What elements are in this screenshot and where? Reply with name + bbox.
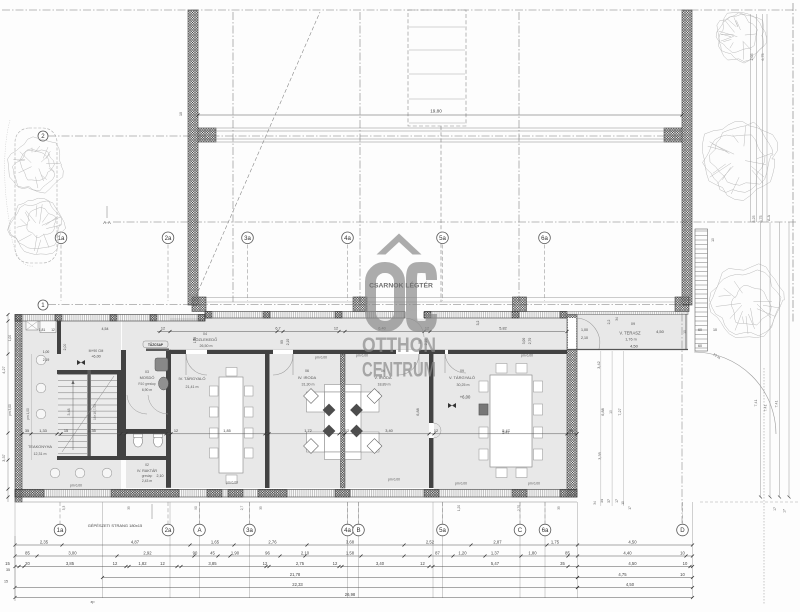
- svg-text:12: 12: [263, 561, 268, 566]
- svg-text:12: 12: [160, 561, 165, 566]
- svg-text:17: 17: [615, 499, 619, 503]
- svg-text:MOSDÓ: MOSDÓ: [140, 375, 155, 380]
- svg-text:87: 87: [435, 550, 440, 555]
- svg-text:1,38: 1,38: [193, 337, 197, 344]
- svg-text:3,00: 3,00: [68, 550, 77, 555]
- svg-text:pm 0,00: pm 0,00: [528, 482, 540, 486]
- svg-text:1a: 1a: [57, 527, 64, 534]
- svg-text:pm 0,00: pm 0,00: [388, 478, 400, 482]
- svg-text:12: 12: [113, 561, 118, 566]
- svg-text:21,41 m: 21,41 m: [186, 385, 199, 389]
- svg-text:17: 17: [773, 507, 777, 511]
- svg-text:26,98: 26,98: [345, 592, 356, 597]
- svg-text:10: 10: [621, 501, 625, 505]
- svg-text:37: 37: [607, 499, 611, 503]
- svg-text:10: 10: [713, 328, 717, 332]
- svg-text:3,2: 3,2: [476, 321, 480, 326]
- svg-text:1,82: 1,82: [142, 428, 150, 433]
- svg-text:1,58: 1,58: [346, 550, 355, 555]
- svg-text:pm 0,00: pm 0,00: [455, 482, 467, 486]
- svg-text:TEAKONYHA: TEAKONYHA: [28, 444, 52, 449]
- svg-text:19,80: 19,80: [430, 109, 442, 114]
- svg-text:5a: 5a: [439, 235, 446, 242]
- svg-text:2,10: 2,10: [581, 336, 588, 340]
- svg-text:8,75: 8,75: [759, 216, 763, 223]
- svg-text:35: 35: [557, 506, 561, 510]
- svg-text:3a: 3a: [246, 527, 253, 534]
- svg-text:1,76 m: 1,76 m: [625, 338, 637, 342]
- svg-text:1,20: 1,20: [458, 550, 467, 555]
- svg-text:3,00: 3,00: [522, 338, 526, 345]
- svg-text:90: 90: [193, 550, 198, 555]
- svg-text:2,43 m: 2,43 m: [142, 479, 153, 483]
- svg-text:22,33: 22,33: [292, 582, 303, 587]
- svg-text:pm 1,00: pm 1,00: [26, 408, 30, 420]
- svg-text:35: 35: [25, 428, 29, 433]
- svg-text:2,87: 2,87: [493, 539, 502, 544]
- svg-text:31,30 m: 31,30 m: [302, 383, 315, 387]
- svg-text:5,3: 5,3: [62, 506, 66, 511]
- svg-text:90: 90: [280, 340, 284, 344]
- svg-text:4,40: 4,40: [623, 550, 632, 555]
- svg-text:M+90 CM: M+90 CM: [89, 349, 104, 353]
- svg-text:6,88: 6,88: [416, 408, 420, 415]
- svg-text:4,50: 4,50: [628, 539, 637, 544]
- svg-text:R10 greslap: R10 greslap: [138, 382, 155, 386]
- svg-text:3,40: 3,40: [385, 428, 393, 433]
- svg-text:02: 02: [145, 463, 149, 467]
- svg-text:GÉPÉSZETI STRANG 180x15: GÉPÉSZETI STRANG 180x15: [88, 523, 143, 528]
- svg-text:17: 17: [783, 509, 787, 513]
- svg-text:5,47: 5,47: [491, 561, 500, 566]
- svg-text:5,82: 5,82: [499, 327, 506, 331]
- svg-text:2,92: 2,92: [143, 550, 152, 555]
- svg-text:+6,00: +6,00: [460, 395, 471, 400]
- svg-text:1,75: 1,75: [551, 539, 560, 544]
- svg-text:17: 17: [628, 506, 632, 510]
- svg-text:09: 09: [631, 322, 635, 326]
- svg-text:pm 0,00: pm 0,00: [70, 484, 82, 488]
- svg-text:1,80: 1,80: [528, 550, 537, 555]
- svg-text:4,87: 4,87: [131, 539, 140, 544]
- svg-text:21,78: 21,78: [290, 572, 301, 577]
- svg-text:3,42: 3,42: [597, 361, 601, 368]
- svg-text:7,27: 7,27: [618, 408, 622, 415]
- svg-text:CSARNOK LÉGTÉR: CSARNOK LÉGTÉR: [369, 281, 433, 290]
- svg-text:1,00: 1,00: [43, 350, 50, 354]
- svg-text:1,65: 1,65: [211, 539, 220, 544]
- svg-text:OTTHON: OTTHON: [362, 334, 436, 357]
- svg-text:35: 35: [127, 506, 131, 510]
- svg-text:06: 06: [305, 369, 309, 373]
- svg-text:2,10: 2,10: [301, 550, 310, 555]
- svg-text:2a: 2a: [165, 527, 172, 534]
- svg-text:A-A: A-A: [767, 214, 771, 221]
- svg-text:2a: 2a: [165, 235, 172, 242]
- svg-text:35: 35: [560, 561, 565, 566]
- svg-text:6a: 6a: [542, 527, 549, 534]
- svg-text:2,70: 2,70: [528, 338, 532, 345]
- svg-text:1,81: 1,81: [39, 328, 46, 332]
- svg-text:3,40: 3,40: [376, 561, 385, 566]
- svg-text:04: 04: [203, 332, 207, 336]
- svg-text:35: 35: [259, 506, 263, 510]
- svg-text:3,48: 3,48: [67, 409, 71, 416]
- svg-text:7,41: 7,41: [775, 401, 779, 408]
- svg-text:IV. TÁRGYALÓ: IV. TÁRGYALÓ: [178, 376, 205, 381]
- svg-text:35: 35: [569, 428, 573, 433]
- svg-text:2,00: 2,00: [63, 344, 67, 351]
- svg-text:10: 10: [179, 112, 183, 116]
- svg-text:4,75: 4,75: [618, 572, 627, 577]
- svg-text:6,88: 6,88: [601, 408, 605, 415]
- svg-text:2,05: 2,05: [750, 54, 754, 61]
- svg-text:IV. RAKTÁR: IV. RAKTÁR: [137, 469, 157, 473]
- svg-text:15: 15: [121, 428, 125, 433]
- svg-text:18×16,7/28: 18×16,7/28: [93, 404, 97, 420]
- svg-text:60: 60: [698, 328, 702, 332]
- svg-text:1,33: 1,33: [39, 428, 47, 433]
- svg-text:5,47: 5,47: [502, 428, 510, 433]
- svg-text:2,10: 2,10: [157, 474, 164, 478]
- svg-text:15: 15: [4, 580, 8, 584]
- svg-text:10: 10: [683, 330, 687, 334]
- svg-text:3,85: 3,85: [208, 561, 217, 566]
- svg-text:12: 12: [51, 328, 55, 332]
- svg-text:20: 20: [25, 561, 30, 566]
- svg-text:1,37: 1,37: [491, 550, 500, 555]
- svg-text:4a: 4a: [344, 235, 351, 242]
- svg-text:12: 12: [174, 428, 178, 433]
- svg-text:4a: 4a: [344, 527, 351, 534]
- svg-text:pm 3,00: pm 3,00: [8, 404, 12, 416]
- svg-text:1,20: 1,20: [457, 505, 461, 511]
- svg-text:1,85: 1,85: [223, 429, 230, 433]
- svg-text:26,50 m: 26,50 m: [200, 344, 213, 348]
- svg-text:12: 12: [334, 327, 338, 331]
- svg-text:6,7: 6,7: [275, 327, 280, 331]
- svg-text:10: 10: [680, 572, 685, 577]
- svg-text:12,31 m: 12,31 m: [34, 452, 47, 456]
- svg-text:8,25: 8,25: [752, 216, 756, 223]
- svg-text:18,89 m: 18,89 m: [378, 383, 391, 387]
- svg-text:B: B: [356, 527, 360, 534]
- svg-text:zp: zp: [90, 600, 94, 604]
- svg-text:2,76: 2,76: [268, 539, 277, 544]
- svg-text:+6,00: +6,00: [91, 355, 101, 359]
- svg-text:4,50: 4,50: [626, 582, 635, 587]
- svg-text:10: 10: [711, 238, 715, 242]
- svg-text:3,37: 3,37: [2, 454, 6, 461]
- svg-text:CENTRUM: CENTRUM: [362, 359, 436, 382]
- svg-text:IV. IRODA: IV. IRODA: [298, 375, 317, 380]
- svg-text:90: 90: [194, 506, 198, 510]
- svg-text:35: 35: [6, 568, 10, 572]
- svg-text:3,85: 3,85: [66, 561, 75, 566]
- svg-text:10: 10: [683, 561, 688, 566]
- svg-text:12: 12: [161, 327, 165, 331]
- svg-text:D: D: [680, 527, 685, 534]
- svg-text:2,7: 2,7: [240, 506, 244, 511]
- svg-text:6,90 m: 6,90 m: [142, 388, 153, 392]
- svg-text:3a: 3a: [244, 235, 251, 242]
- svg-text:pm 0,00: pm 0,00: [315, 356, 327, 360]
- svg-text:2,75: 2,75: [296, 561, 305, 566]
- svg-text:pm 0,00: pm 0,00: [521, 354, 533, 358]
- svg-text:2,70: 2,70: [517, 505, 521, 511]
- svg-text:45: 45: [210, 550, 215, 555]
- svg-text:V. TERASZ: V. TERASZ: [619, 331, 641, 336]
- svg-text:34: 34: [615, 317, 619, 321]
- svg-text:2,35: 2,35: [40, 539, 49, 544]
- svg-text:7,41: 7,41: [754, 400, 758, 407]
- svg-text:A-A: A-A: [103, 220, 111, 225]
- svg-text:5a: 5a: [439, 527, 446, 534]
- svg-text:10: 10: [609, 410, 613, 414]
- svg-text:85: 85: [565, 550, 570, 555]
- svg-text:4,50: 4,50: [656, 329, 665, 334]
- svg-text:6,75: 6,75: [761, 54, 765, 61]
- svg-text:2,35: 2,35: [88, 428, 96, 433]
- svg-text:2,2: 2,2: [607, 320, 611, 325]
- svg-text:1,82: 1,82: [138, 561, 147, 566]
- svg-text:12: 12: [434, 428, 438, 433]
- svg-text:3,39: 3,39: [598, 452, 602, 459]
- svg-text:4,50: 4,50: [630, 344, 639, 349]
- svg-text:12: 12: [420, 561, 425, 566]
- svg-text:6a: 6a: [541, 235, 548, 242]
- svg-text:09: 09: [460, 369, 464, 373]
- svg-text:12: 12: [345, 428, 349, 433]
- svg-text:pm 0,00: pm 0,00: [226, 481, 238, 485]
- svg-text:30,25 m: 30,25 m: [457, 383, 470, 387]
- svg-text:3,68: 3,68: [346, 539, 355, 544]
- svg-text:TŰZCSAP: TŰZCSAP: [148, 342, 164, 347]
- svg-text:C: C: [518, 527, 523, 534]
- svg-text:60: 60: [698, 344, 702, 348]
- svg-text:1,90: 1,90: [231, 550, 240, 555]
- svg-text:7,41: 7,41: [764, 405, 768, 412]
- svg-text:96: 96: [265, 550, 270, 555]
- svg-text:1,00: 1,00: [581, 328, 588, 332]
- svg-text:1,00: 1,00: [8, 335, 12, 341]
- svg-text:greslap: greslap: [142, 474, 153, 478]
- svg-text:4,54: 4,54: [102, 327, 109, 331]
- svg-text:15: 15: [64, 428, 68, 433]
- svg-text:85: 85: [25, 550, 30, 555]
- svg-text:V. TÁRGYALÓ: V. TÁRGYALÓ: [449, 375, 475, 380]
- svg-text:1,72: 1,72: [304, 428, 312, 433]
- svg-text:12: 12: [265, 428, 269, 433]
- svg-text:2,52: 2,52: [426, 539, 435, 544]
- svg-text:2,10: 2,10: [286, 339, 290, 346]
- svg-text:4,27: 4,27: [2, 366, 6, 373]
- svg-text:4,50: 4,50: [628, 561, 637, 566]
- svg-text:34: 34: [593, 501, 597, 505]
- svg-text:10: 10: [680, 550, 685, 555]
- svg-text:12: 12: [333, 561, 338, 566]
- svg-text:03: 03: [145, 370, 149, 374]
- svg-text:2,19: 2,19: [43, 358, 50, 362]
- svg-text:15: 15: [5, 561, 10, 566]
